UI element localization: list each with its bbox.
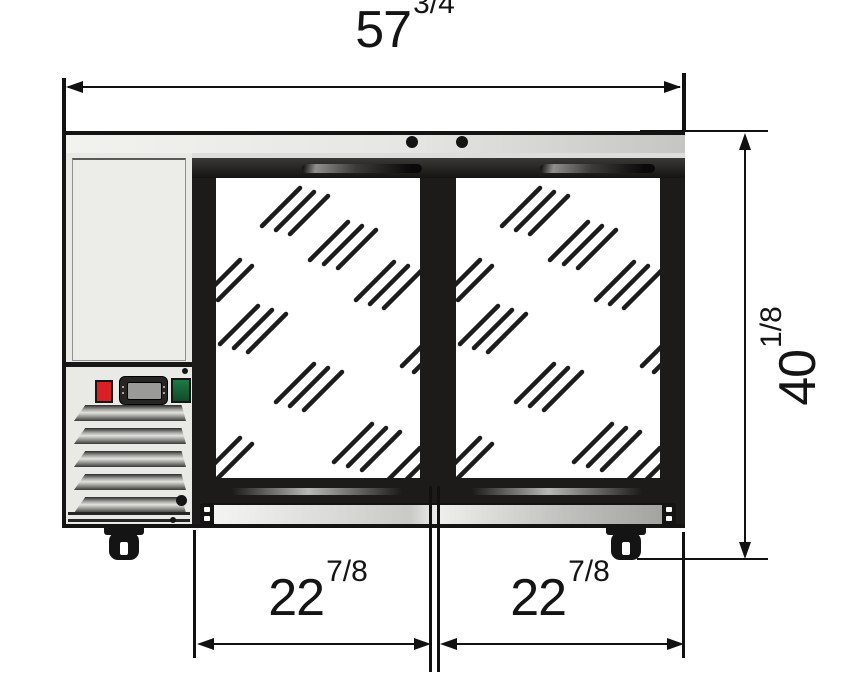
extension-line-width-right: [682, 73, 686, 131]
louver-vent: [74, 428, 186, 444]
controller-screen: [127, 382, 162, 400]
arrowhead-right-icon: [667, 638, 684, 650]
dimension-right-door-label: 227/8: [510, 572, 610, 624]
right-glass-door: [456, 178, 660, 478]
unit-bottom-edge: [62, 524, 685, 528]
arrowhead-left-icon: [440, 638, 457, 650]
unit-left-edge: [62, 131, 66, 528]
glass-reflection-hatch: [456, 178, 660, 478]
dimension-diagram-canvas: 573/4: [0, 0, 848, 688]
temperature-controller: [119, 376, 168, 405]
dimension-left-door-value: 22: [268, 569, 324, 627]
glass-reflection-hatch: [216, 178, 420, 478]
hinge-pin-icon: [176, 495, 187, 506]
dimension-right-door-fraction: 7/8: [568, 555, 610, 588]
extension-line-height-top: [640, 130, 768, 132]
bottom-rail-highlight: [232, 488, 402, 495]
dimension-line-overall-width: [68, 86, 680, 88]
left-door-handle-recess: [302, 164, 422, 173]
arrowhead-right-icon: [664, 81, 681, 93]
extension-line-door-left: [193, 530, 196, 658]
section-divider: [66, 362, 192, 367]
power-button-red: [95, 380, 113, 403]
arrowhead-left-icon: [197, 638, 214, 650]
dimension-line-left-door: [200, 643, 428, 645]
dimension-overall-height-value: 40: [769, 350, 827, 406]
arrowhead-down-icon: [739, 542, 751, 559]
counter-screw-cap-icon: [456, 136, 468, 148]
dimension-overall-width-value: 57: [355, 1, 411, 59]
bottom-rail-highlight: [472, 488, 642, 495]
dimension-overall-height-fraction: 1/8: [755, 306, 788, 348]
dimension-left-door-label: 227/8: [268, 572, 368, 624]
louver-vent: [74, 497, 186, 513]
left-caster: [104, 524, 144, 564]
controller-buttons-icon: [122, 386, 124, 388]
dimension-left-door-fraction: 7/8: [326, 555, 368, 588]
arrowhead-right-icon: [414, 638, 431, 650]
counter-screw-cap-icon: [406, 136, 418, 148]
left-glass-door: [216, 178, 420, 478]
compressor-section: [66, 153, 192, 525]
arrowhead-left-icon: [66, 81, 83, 93]
dimension-overall-width-label: 573/4: [355, 4, 455, 56]
kick-rail-screw-icon: [170, 517, 176, 523]
louver-vent: [74, 405, 186, 421]
arrowhead-up-icon: [739, 133, 751, 150]
dimension-line-overall-height: [744, 140, 746, 556]
kick-rail: [68, 512, 190, 515]
dimension-overall-width-fraction: 3/4: [413, 0, 455, 20]
right-door-handle-recess: [540, 164, 655, 173]
panel-screw-icon: [182, 368, 188, 374]
glass-door-assembly: [192, 158, 685, 528]
side-panel: [72, 158, 186, 361]
dimension-overall-height-label: 401/8: [772, 306, 824, 406]
dimension-line-right-door: [443, 643, 681, 645]
light-button-green: [171, 378, 191, 403]
louver-vent: [74, 474, 186, 490]
louver-vent: [74, 451, 186, 467]
dimension-right-door-value: 22: [510, 569, 566, 627]
